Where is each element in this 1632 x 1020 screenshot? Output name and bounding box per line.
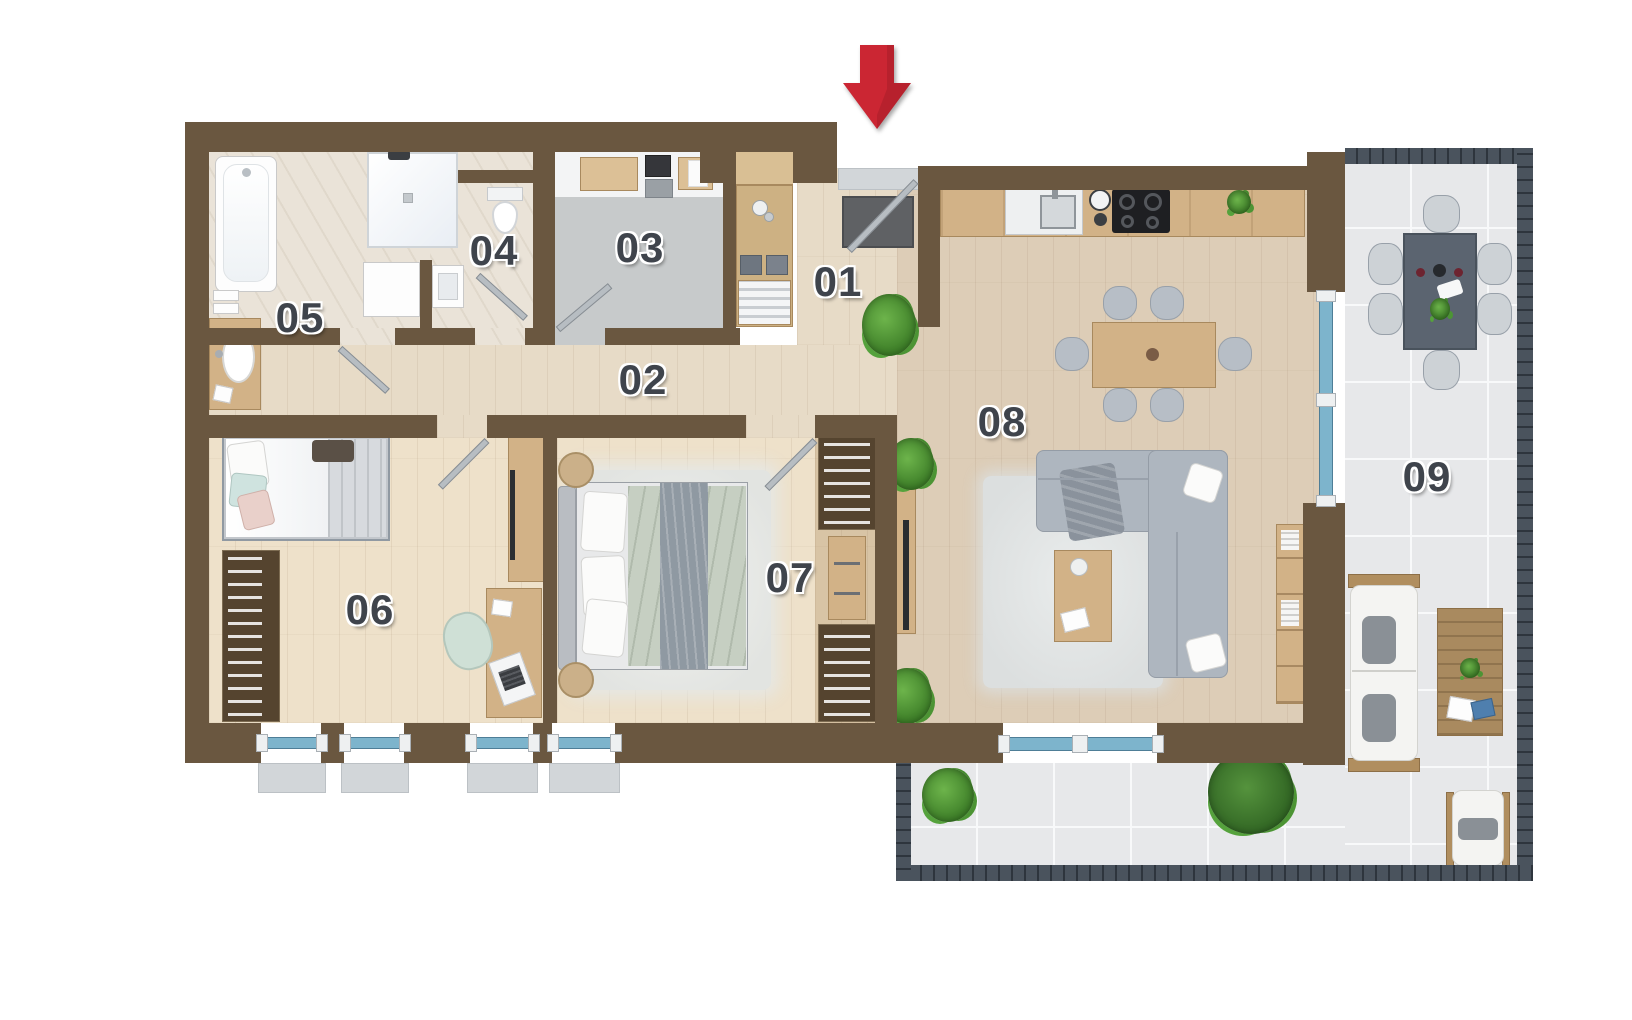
wc-basin-bowl	[438, 273, 458, 300]
bedroom1-tv	[510, 470, 515, 560]
shower-drain	[403, 193, 413, 203]
dresser-handle	[834, 592, 860, 595]
room-label-01: 01	[814, 258, 863, 306]
wall-segment	[875, 415, 897, 723]
closet-box	[740, 255, 762, 275]
lumbar-pillow	[1362, 694, 1396, 742]
wall-segment	[420, 260, 432, 328]
washing-machine	[363, 262, 420, 317]
door-threshold	[475, 328, 525, 345]
bath-accessory	[213, 384, 234, 403]
wall-segment	[815, 415, 897, 438]
desk-paper	[491, 599, 513, 618]
burner	[1144, 193, 1162, 211]
wall-segment	[185, 415, 437, 438]
dining-chair	[1103, 388, 1137, 422]
window-sill	[341, 763, 409, 793]
window-frame	[547, 734, 559, 752]
basin-faucet	[215, 350, 223, 358]
storage-dark-box	[645, 155, 671, 177]
glass-door-handle	[1072, 735, 1088, 753]
room-label-03: 03	[616, 224, 665, 272]
table-plant	[1460, 658, 1480, 678]
dresser-handle	[834, 562, 860, 565]
table-bottle	[1433, 264, 1446, 277]
door-threshold	[746, 415, 815, 438]
room-label-05: 05	[276, 294, 325, 342]
wall-segment	[1307, 152, 1345, 292]
window-sill	[258, 763, 326, 793]
dining-chair	[1150, 286, 1184, 320]
wall-segment	[1157, 723, 1303, 763]
terrace-railing	[896, 865, 1533, 881]
kitchen-plant	[1227, 190, 1251, 214]
room-label-09: 09	[1403, 453, 1452, 501]
bath-mat	[213, 303, 239, 314]
window	[261, 737, 323, 749]
closet-top-shelf	[736, 152, 793, 186]
bed-headboard	[558, 486, 576, 670]
sofa-seam	[1038, 478, 1148, 480]
wall-segment	[1303, 503, 1345, 765]
terrace-railing	[1517, 148, 1533, 881]
closet-knob	[764, 212, 774, 222]
closet-box	[766, 255, 788, 275]
wall-segment	[793, 152, 837, 183]
wall-segment	[543, 438, 557, 723]
sofa-seam	[1176, 532, 1178, 676]
window-frame	[316, 734, 328, 752]
outdoor-chair	[1477, 243, 1512, 285]
room-label-07: 07	[766, 554, 815, 602]
floor-plan: 01 02 03 04 05 06 07 08 09	[0, 0, 1632, 1020]
wall-segment	[918, 166, 940, 327]
room-label-06: 06	[346, 586, 395, 634]
window-sill	[467, 763, 538, 793]
bathtub-faucet	[242, 168, 251, 177]
bathtub-basin	[223, 164, 269, 282]
glass-door-frame	[1316, 290, 1336, 302]
wall-segment	[487, 415, 746, 438]
window-frame	[256, 734, 268, 752]
bed-pillow	[581, 598, 629, 658]
table-plate	[1454, 268, 1463, 277]
window	[552, 737, 617, 749]
wall-segment	[918, 166, 1345, 190]
glass-door-frame	[1316, 495, 1336, 507]
hanging-clothes	[228, 556, 262, 716]
window-frame	[399, 734, 411, 752]
terrace-plant	[922, 768, 974, 822]
window	[344, 737, 406, 749]
wall-segment	[185, 122, 209, 763]
wall-segment	[723, 152, 736, 328]
lumbar-pillow	[1362, 616, 1396, 664]
hanging-clothes	[824, 438, 870, 524]
nightstand	[558, 662, 594, 698]
wall-segment	[605, 328, 740, 345]
burner	[1146, 216, 1159, 229]
window-frame	[610, 734, 622, 752]
storage-basket	[645, 179, 673, 198]
room-label-08: 08	[978, 398, 1027, 446]
burner	[1121, 215, 1134, 228]
nightstand	[558, 452, 594, 488]
wall-segment	[458, 170, 533, 183]
bed-throw-gray	[660, 483, 708, 669]
dining-chair	[1055, 337, 1089, 371]
dresser	[828, 536, 866, 620]
hanging-clothes	[824, 630, 870, 716]
burner	[1119, 194, 1135, 210]
table-plate	[1416, 268, 1425, 277]
outdoor-chair	[1423, 195, 1460, 233]
wall-segment	[533, 152, 555, 328]
dining-chair	[1150, 388, 1184, 422]
window-frame	[528, 734, 540, 752]
corridor-floor	[209, 345, 897, 418]
wall-segment	[185, 122, 837, 152]
glass-door-frame	[1316, 393, 1336, 407]
bed-pillow	[580, 491, 628, 554]
room-label-04: 04	[470, 227, 519, 275]
room-label-02: 02	[619, 356, 668, 404]
outdoor-chair	[1477, 293, 1512, 335]
window	[470, 737, 535, 749]
sofa-blanket	[1059, 462, 1126, 542]
bath-mat	[213, 290, 239, 301]
window-frame	[465, 734, 477, 752]
terrace-railing	[896, 763, 911, 881]
plant	[862, 294, 916, 356]
table-plant	[1430, 298, 1450, 320]
table-bowl	[1146, 348, 1159, 361]
storage-box	[580, 157, 638, 191]
glass-door-frame	[998, 735, 1010, 753]
kettle	[1089, 189, 1111, 211]
wall-segment	[878, 723, 1003, 763]
sofa-seam	[1352, 670, 1416, 672]
wall-segment	[404, 723, 470, 763]
shoe-rack	[738, 280, 791, 325]
toilet-tank	[487, 187, 523, 201]
books	[1281, 530, 1299, 550]
glass-door-frame	[1152, 735, 1164, 753]
dining-chair	[1218, 337, 1252, 371]
folded-blanket	[312, 440, 354, 462]
door-threshold	[340, 328, 395, 345]
armchair-pillow	[1458, 818, 1498, 840]
wall-segment	[525, 328, 555, 345]
door-threshold	[555, 328, 605, 345]
books	[1281, 600, 1299, 626]
entrance-arrow-icon	[843, 45, 911, 129]
outdoor-chair	[1368, 243, 1403, 285]
tv	[903, 520, 909, 630]
coffee-table-plate	[1070, 558, 1088, 576]
window-frame	[339, 734, 351, 752]
coffee-maker	[1094, 213, 1107, 226]
door-threshold	[437, 415, 487, 438]
window-sill	[549, 763, 620, 793]
terrace-railing	[1345, 148, 1533, 164]
outdoor-chair	[1368, 293, 1403, 335]
wall-segment	[615, 723, 878, 763]
sink-bowl	[1040, 195, 1076, 229]
wall-segment	[185, 723, 261, 763]
outdoor-chair	[1423, 350, 1460, 390]
wall-segment	[395, 328, 475, 345]
dining-chair	[1103, 286, 1137, 320]
